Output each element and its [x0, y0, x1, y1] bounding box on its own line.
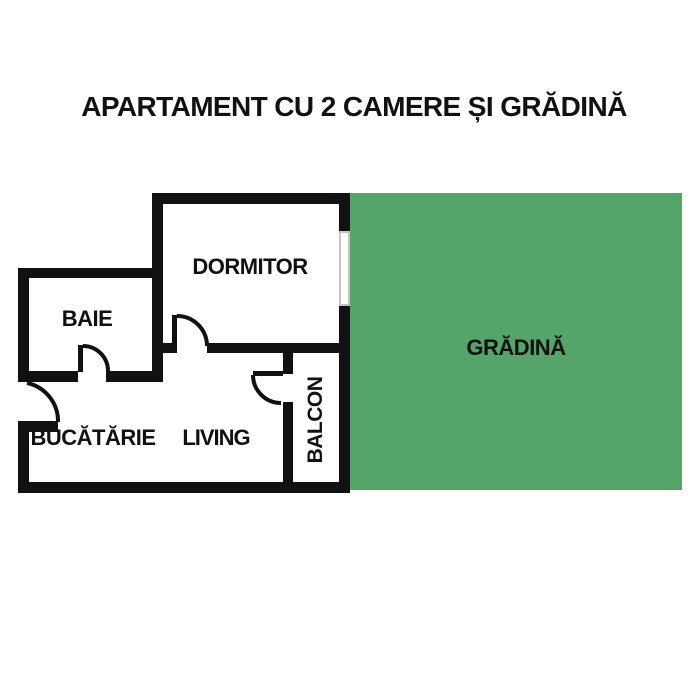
door-leaf-dormitor [172, 315, 177, 345]
door-arc-dormitor [177, 316, 207, 346]
floor-plan-canvas [0, 0, 700, 700]
door-arc-entry [27, 383, 58, 422]
room-label-dormitor: DORMITOR [192, 254, 307, 280]
floor-plan-page: APARTAMENT CU 2 CAMERE ȘI GRĂDINĂ [0, 0, 700, 700]
wall-living-top [207, 343, 350, 353]
room-label-balcon: BALCON [304, 377, 328, 464]
door-leaf-balcon [253, 371, 283, 376]
door-arc-balcon [253, 375, 281, 403]
room-label-gradina: GRĂDINĂ [466, 335, 565, 361]
room-label-living: LIVING [182, 425, 249, 451]
wall-balcon-left-lower [283, 402, 293, 493]
door-leaf-baie [78, 345, 83, 372]
room-label-baie: BAIE [62, 306, 113, 332]
wall-baie-left [18, 268, 29, 382]
room-label-bucatarie: BUCĂTĂRIE [30, 425, 155, 451]
door-arc-baie [83, 346, 108, 371]
wall-dormitor-top [152, 193, 350, 204]
wall-baie-top [18, 268, 163, 278]
wall-dormitor-left [152, 193, 163, 382]
wall-right-lower [339, 305, 350, 493]
wall-baie-bottom-left [18, 371, 78, 382]
window-dormitor-icon [340, 232, 349, 305]
wall-baie-bottom-right [106, 371, 163, 382]
wall-right-upper [339, 193, 350, 232]
wall-balcon-left-upper [283, 343, 293, 374]
wall-bottom [18, 482, 350, 493]
